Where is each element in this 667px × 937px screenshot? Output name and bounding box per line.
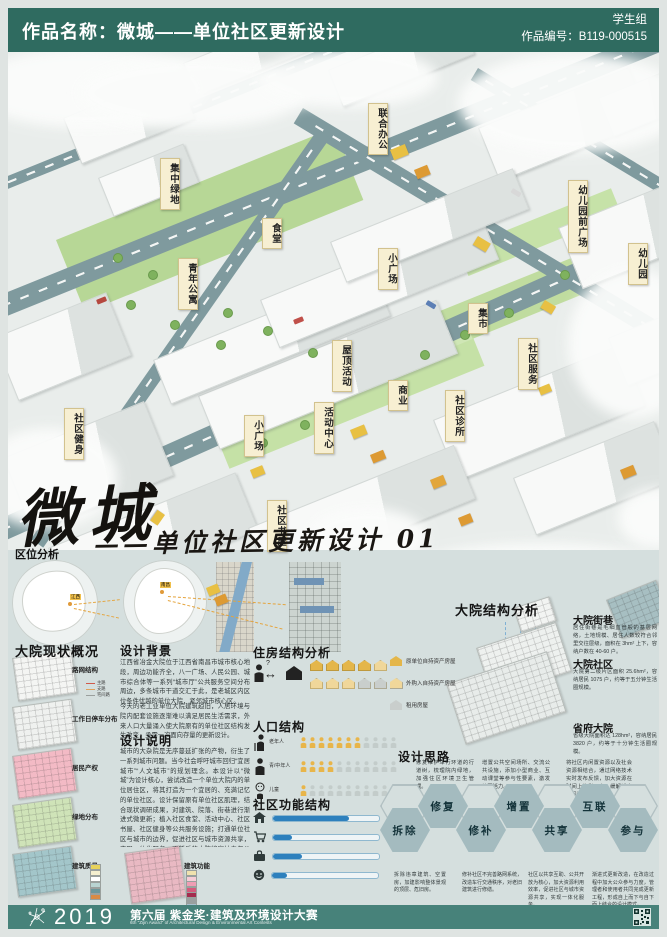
city-grid-map	[216, 562, 254, 652]
adult-icon	[253, 758, 267, 775]
tree	[126, 300, 136, 310]
map-label-幼儿园前广场: 幼儿园前广场	[568, 180, 588, 253]
bag-icon	[253, 850, 266, 862]
person-glyph	[390, 761, 397, 772]
person-glyph	[336, 737, 343, 748]
person-glyph	[345, 761, 352, 772]
location-analysis-heading: 区位分析	[15, 546, 59, 562]
bar-track	[272, 815, 380, 822]
population-row-icon	[253, 734, 267, 756]
person-glyph	[381, 737, 388, 748]
person-glyph	[327, 737, 334, 748]
tree	[170, 320, 180, 330]
entry-number: 作品编号：B119-000515	[521, 29, 647, 46]
bar-fill	[273, 816, 349, 821]
house-legend-icon	[390, 700, 402, 710]
person-glyph	[363, 761, 370, 772]
header-bar: 作品名称：微城——单位社区更新设计 学生组 作品编号：B119-000515	[8, 8, 659, 52]
house-legend-icon	[390, 678, 402, 688]
building-function-plan	[124, 845, 187, 904]
population-row-glyphs	[300, 785, 397, 796]
header-meta: 学生组 作品编号：B119-000515	[521, 12, 647, 47]
bar-fill	[272, 873, 287, 878]
function-bar-row	[253, 869, 379, 881]
courtyard-item-text: 居住街巷是毛细血管般的基层网络，土地规模、居住人数较符合邻里交往层级，面积在 3…	[573, 625, 657, 657]
status-plan-5	[12, 846, 78, 898]
footer-year: 2019	[54, 904, 115, 929]
map-label-活动中心: 活动中心	[314, 402, 334, 454]
person-glyph	[345, 737, 352, 748]
tree	[216, 340, 226, 350]
road-legend-swatch	[86, 689, 95, 690]
status-plan-label: 居民产权	[72, 762, 118, 772]
bar-fill	[273, 835, 292, 840]
person-glyph	[336, 761, 343, 772]
market-stall	[458, 513, 473, 526]
cart-icon	[253, 831, 266, 843]
river	[216, 562, 254, 652]
bar-track	[272, 853, 380, 860]
zijin-award-logo	[26, 906, 48, 928]
housing-legend-label: 租用房屋	[406, 701, 428, 709]
person-glyph	[300, 737, 307, 748]
footer-contest-subtitle: 6th "Zijin Award" of Architectural Desig…	[130, 920, 272, 925]
description-paragraph: 城市的大杂院是无序蔓延扩张的产物，衍生了一系列城市问题。当今社会呼吁城市回归“宜…	[120, 747, 250, 847]
person-glyph	[372, 785, 379, 796]
courtyard-structure-heading: 大院结构分析	[455, 600, 539, 619]
housing-legend-item: 租用房屋	[390, 700, 428, 710]
population-row-label: 青/中年人	[269, 762, 297, 769]
footer-bar: 2019 第六届 紫金奖·建筑及环境设计大赛 6th "Zijin Award"…	[8, 905, 659, 929]
status-plan-label: 工作日停车分布	[72, 713, 118, 723]
road-legend-swatch	[86, 683, 95, 684]
person-glyph	[372, 761, 379, 772]
person-glyph	[363, 785, 370, 796]
population-row-icon	[253, 758, 267, 780]
population-row-label: 老年人	[269, 738, 297, 745]
ideas-bottom-note: 渐进式更新改造，在改造过程中加大公众参与力度，管理者和使用者共同完成更新工程，形…	[592, 872, 654, 910]
courtyard-item-text: 大院第二级片区面积 25.6hm²，容纳居民 1075 户，约等于五分钟生活圈规…	[573, 669, 657, 693]
home-icon	[253, 812, 266, 824]
population-row-glyphs	[300, 737, 397, 748]
map-label-屋顶活动: 屋顶活动	[332, 340, 352, 392]
face-icon	[253, 869, 265, 881]
market-stall	[370, 450, 386, 464]
tree	[113, 253, 123, 263]
road-legend-swatch	[86, 695, 95, 696]
function-bar-row	[253, 850, 380, 862]
map-label-幼儿园: 幼儿园	[628, 243, 648, 285]
site-plan-strip	[294, 578, 324, 585]
population-row-glyphs	[300, 761, 397, 772]
population-row-label: 儿童	[269, 786, 297, 793]
person-glyph	[363, 737, 370, 748]
status-plan-label: 绿地分布	[72, 811, 118, 821]
poster: 作品名称：微城——单位社区更新设计 学生组 作品编号：B119-000515 联…	[8, 8, 659, 929]
housing-legend-item: 外购入自持资产房屋	[390, 678, 456, 688]
person-glyph	[354, 737, 361, 748]
map-label-商业: 商业	[388, 380, 408, 411]
housing-legend-label: 原单位自持资产房屋	[406, 657, 456, 665]
cloud	[258, 48, 438, 108]
market-stall	[350, 424, 368, 439]
map-label-食堂: 食堂	[262, 218, 282, 249]
china-dot	[68, 602, 72, 606]
road-legend-label: 宅间路	[97, 692, 110, 698]
bar-track	[271, 872, 379, 879]
person-glyph	[381, 761, 388, 772]
person-glyph	[309, 737, 316, 748]
person-glyph	[372, 737, 379, 748]
qr-code	[633, 908, 651, 926]
housing-legend-label: 外购入自持资产房屋	[406, 679, 456, 687]
population-heading: 人口结构	[253, 718, 305, 735]
person-glyph	[336, 785, 343, 796]
person-glyph	[390, 737, 397, 748]
person-glyph	[318, 761, 325, 772]
bar-fill	[273, 854, 302, 859]
ideas-bottom-note: 修补社区不完善路网系统，改造车行交通秩序，对老旧建筑进行修缮。	[462, 872, 522, 895]
status-plan-label: 路网结构	[72, 664, 118, 674]
status-plan-4	[12, 797, 78, 849]
building-block	[8, 292, 132, 401]
person-glyph	[327, 761, 334, 772]
site-plan-strip	[300, 606, 334, 613]
map-label-社区健身: 社区健身	[64, 408, 84, 460]
person-glyph	[309, 785, 316, 796]
poster-title: 作品名称：微城——单位社区更新设计	[22, 18, 345, 44]
person-glyph	[327, 785, 334, 796]
arrow-icon: ↔	[264, 666, 277, 681]
map-label-社区服务: 社区服务	[518, 338, 538, 390]
status-plan-2	[12, 699, 78, 751]
status-heading: 大院现状概况	[15, 641, 99, 660]
china-highlight-tag: 江西	[70, 594, 81, 600]
group-label: 学生组	[521, 12, 647, 29]
person-glyph	[309, 761, 316, 772]
quality-legend-swatch	[90, 894, 101, 900]
function-bar-row	[253, 812, 380, 824]
city-tag: 南昌	[160, 582, 171, 588]
person-glyph	[318, 737, 325, 748]
background-paragraph-1: 江西省冶金大院位于江西省南昌市城市核心地段，周边功能齐全，八一广场、人民公园、城…	[120, 658, 250, 707]
ideas-bottom-note: 拆除违章建筑、空置房，加建影响整体景观的顶层、危旧房。	[394, 872, 446, 895]
functions-heading: 社区功能结构	[253, 796, 331, 813]
map-label-社区诊所: 社区诊所	[445, 390, 465, 442]
status-plan-3	[12, 748, 78, 800]
map-label-小广场: 小广场	[378, 248, 398, 290]
calligraphy-subtitle: ——单位社区更新设计 01	[94, 519, 440, 561]
tree	[263, 326, 273, 336]
house-legend-icon	[390, 656, 402, 666]
map-label-青年公寓: 青年公寓	[178, 258, 198, 310]
market-stall	[414, 165, 431, 180]
courtyard-item-text: 省级大院面积达 128hm²，容纳居民 3820 户，约等于十分钟生活圈规模。	[573, 733, 657, 757]
tree	[148, 270, 158, 280]
road-legend-item: 宅间路	[86, 692, 110, 698]
ideas-bottom-note: 社区以共享互助、公共开放为核心，加大资源利用效率，促进社区与城市资源共享，实现一…	[528, 872, 584, 910]
tree	[560, 270, 570, 280]
housing-heading: 住房结构分析	[253, 644, 331, 661]
tree	[223, 308, 233, 318]
market-stall	[250, 465, 265, 478]
person-glyph	[300, 785, 307, 796]
bar-track	[272, 834, 380, 841]
map-label-集市: 集市	[468, 303, 488, 334]
function-bar-row	[253, 831, 380, 843]
person-glyph	[354, 761, 361, 772]
tree	[420, 350, 430, 360]
map-label-小广场: 小广场	[244, 415, 264, 457]
person-glyph	[318, 785, 325, 796]
background-heading: 设计背景	[120, 642, 172, 659]
map-label-联合办公: 联合办公	[368, 103, 388, 155]
person-glyph	[300, 761, 307, 772]
tree	[300, 420, 310, 430]
housing-legend-item: 原单位自持资产房屋	[390, 656, 456, 666]
tree	[504, 308, 514, 318]
map-label-集中绿地: 集中绿地	[160, 158, 180, 210]
tree	[308, 348, 318, 358]
elderly-icon	[253, 734, 267, 751]
city-dot	[160, 590, 164, 594]
person-glyph	[354, 785, 361, 796]
building-function-label: 建筑功能	[184, 860, 210, 870]
person-glyph	[345, 785, 352, 796]
